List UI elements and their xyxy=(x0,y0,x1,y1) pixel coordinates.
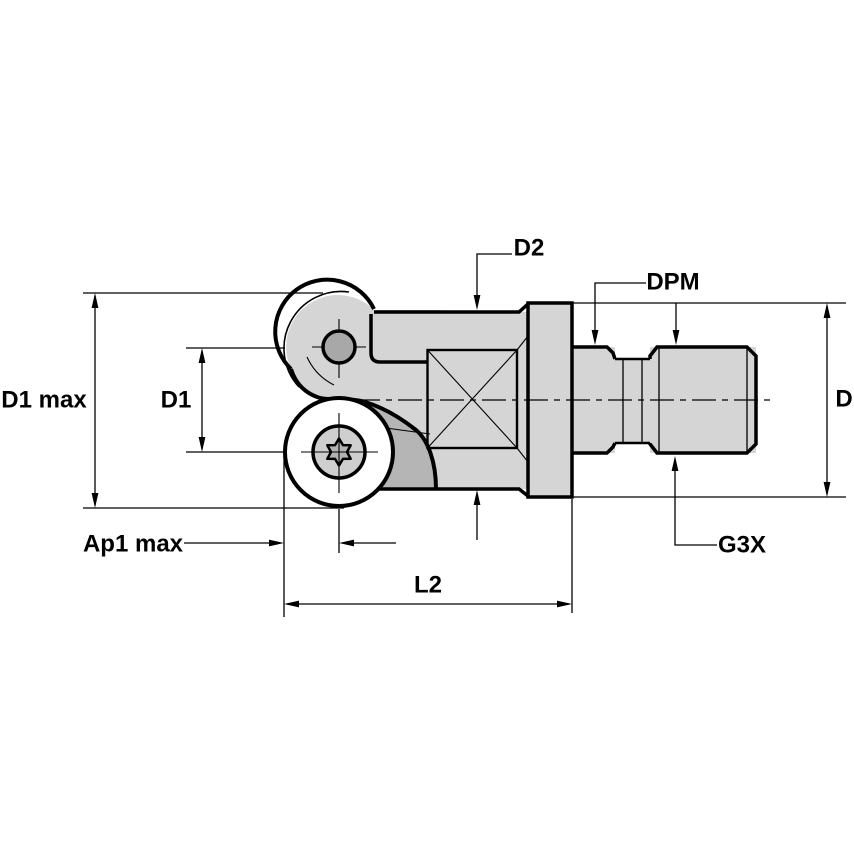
arrowhead-up xyxy=(672,456,679,471)
front-insert xyxy=(285,398,393,506)
dim-label-d1: D1 xyxy=(161,387,192,414)
arrowhead-up xyxy=(92,293,99,308)
dim-l2: L2 xyxy=(284,499,572,613)
dim-label-l2: L2 xyxy=(414,572,442,599)
dim-label-d1-max: D1 max xyxy=(1,387,87,414)
arrowhead-down-2 xyxy=(673,330,680,345)
dim-d1: D1 xyxy=(161,348,285,452)
top-insert-screw xyxy=(323,331,355,363)
arrowhead-left xyxy=(339,540,354,547)
dim-dpm: DPM xyxy=(592,269,700,346)
body-top-edge xyxy=(374,304,528,312)
end-mill-diagram: D1 max D1 Ap1 max L2 xyxy=(0,0,854,854)
arrowhead-left xyxy=(284,601,299,608)
dpm-leader xyxy=(595,283,646,332)
arrowhead-down xyxy=(474,295,481,310)
groove-fill xyxy=(615,359,650,443)
dim-label-d2: D2 xyxy=(514,235,545,262)
arrowhead-up xyxy=(474,490,481,505)
dim-label-ap1-max: Ap1 max xyxy=(83,531,184,558)
dim-label-g3x: G3X xyxy=(718,532,766,559)
dim-label-dpm: DPM xyxy=(646,269,699,296)
dim-label-d: D xyxy=(835,386,852,413)
arrowhead-down xyxy=(92,493,99,508)
g3x-leader xyxy=(675,468,717,545)
arrowhead-right xyxy=(269,540,284,547)
arrowhead-down xyxy=(824,482,831,497)
d1-extension-lines xyxy=(186,348,285,452)
drawing-canvas: D1 max D1 Ap1 max L2 xyxy=(0,0,854,854)
body-bottom-edge xyxy=(376,489,528,496)
d2-leader xyxy=(477,254,512,297)
dim-g3x: G3X xyxy=(672,456,766,559)
arrowhead-down xyxy=(199,437,206,452)
arrowhead-up xyxy=(824,303,831,318)
arrowhead-up xyxy=(199,348,206,363)
arrowhead-down xyxy=(592,330,599,345)
arrowhead-right xyxy=(557,601,572,608)
